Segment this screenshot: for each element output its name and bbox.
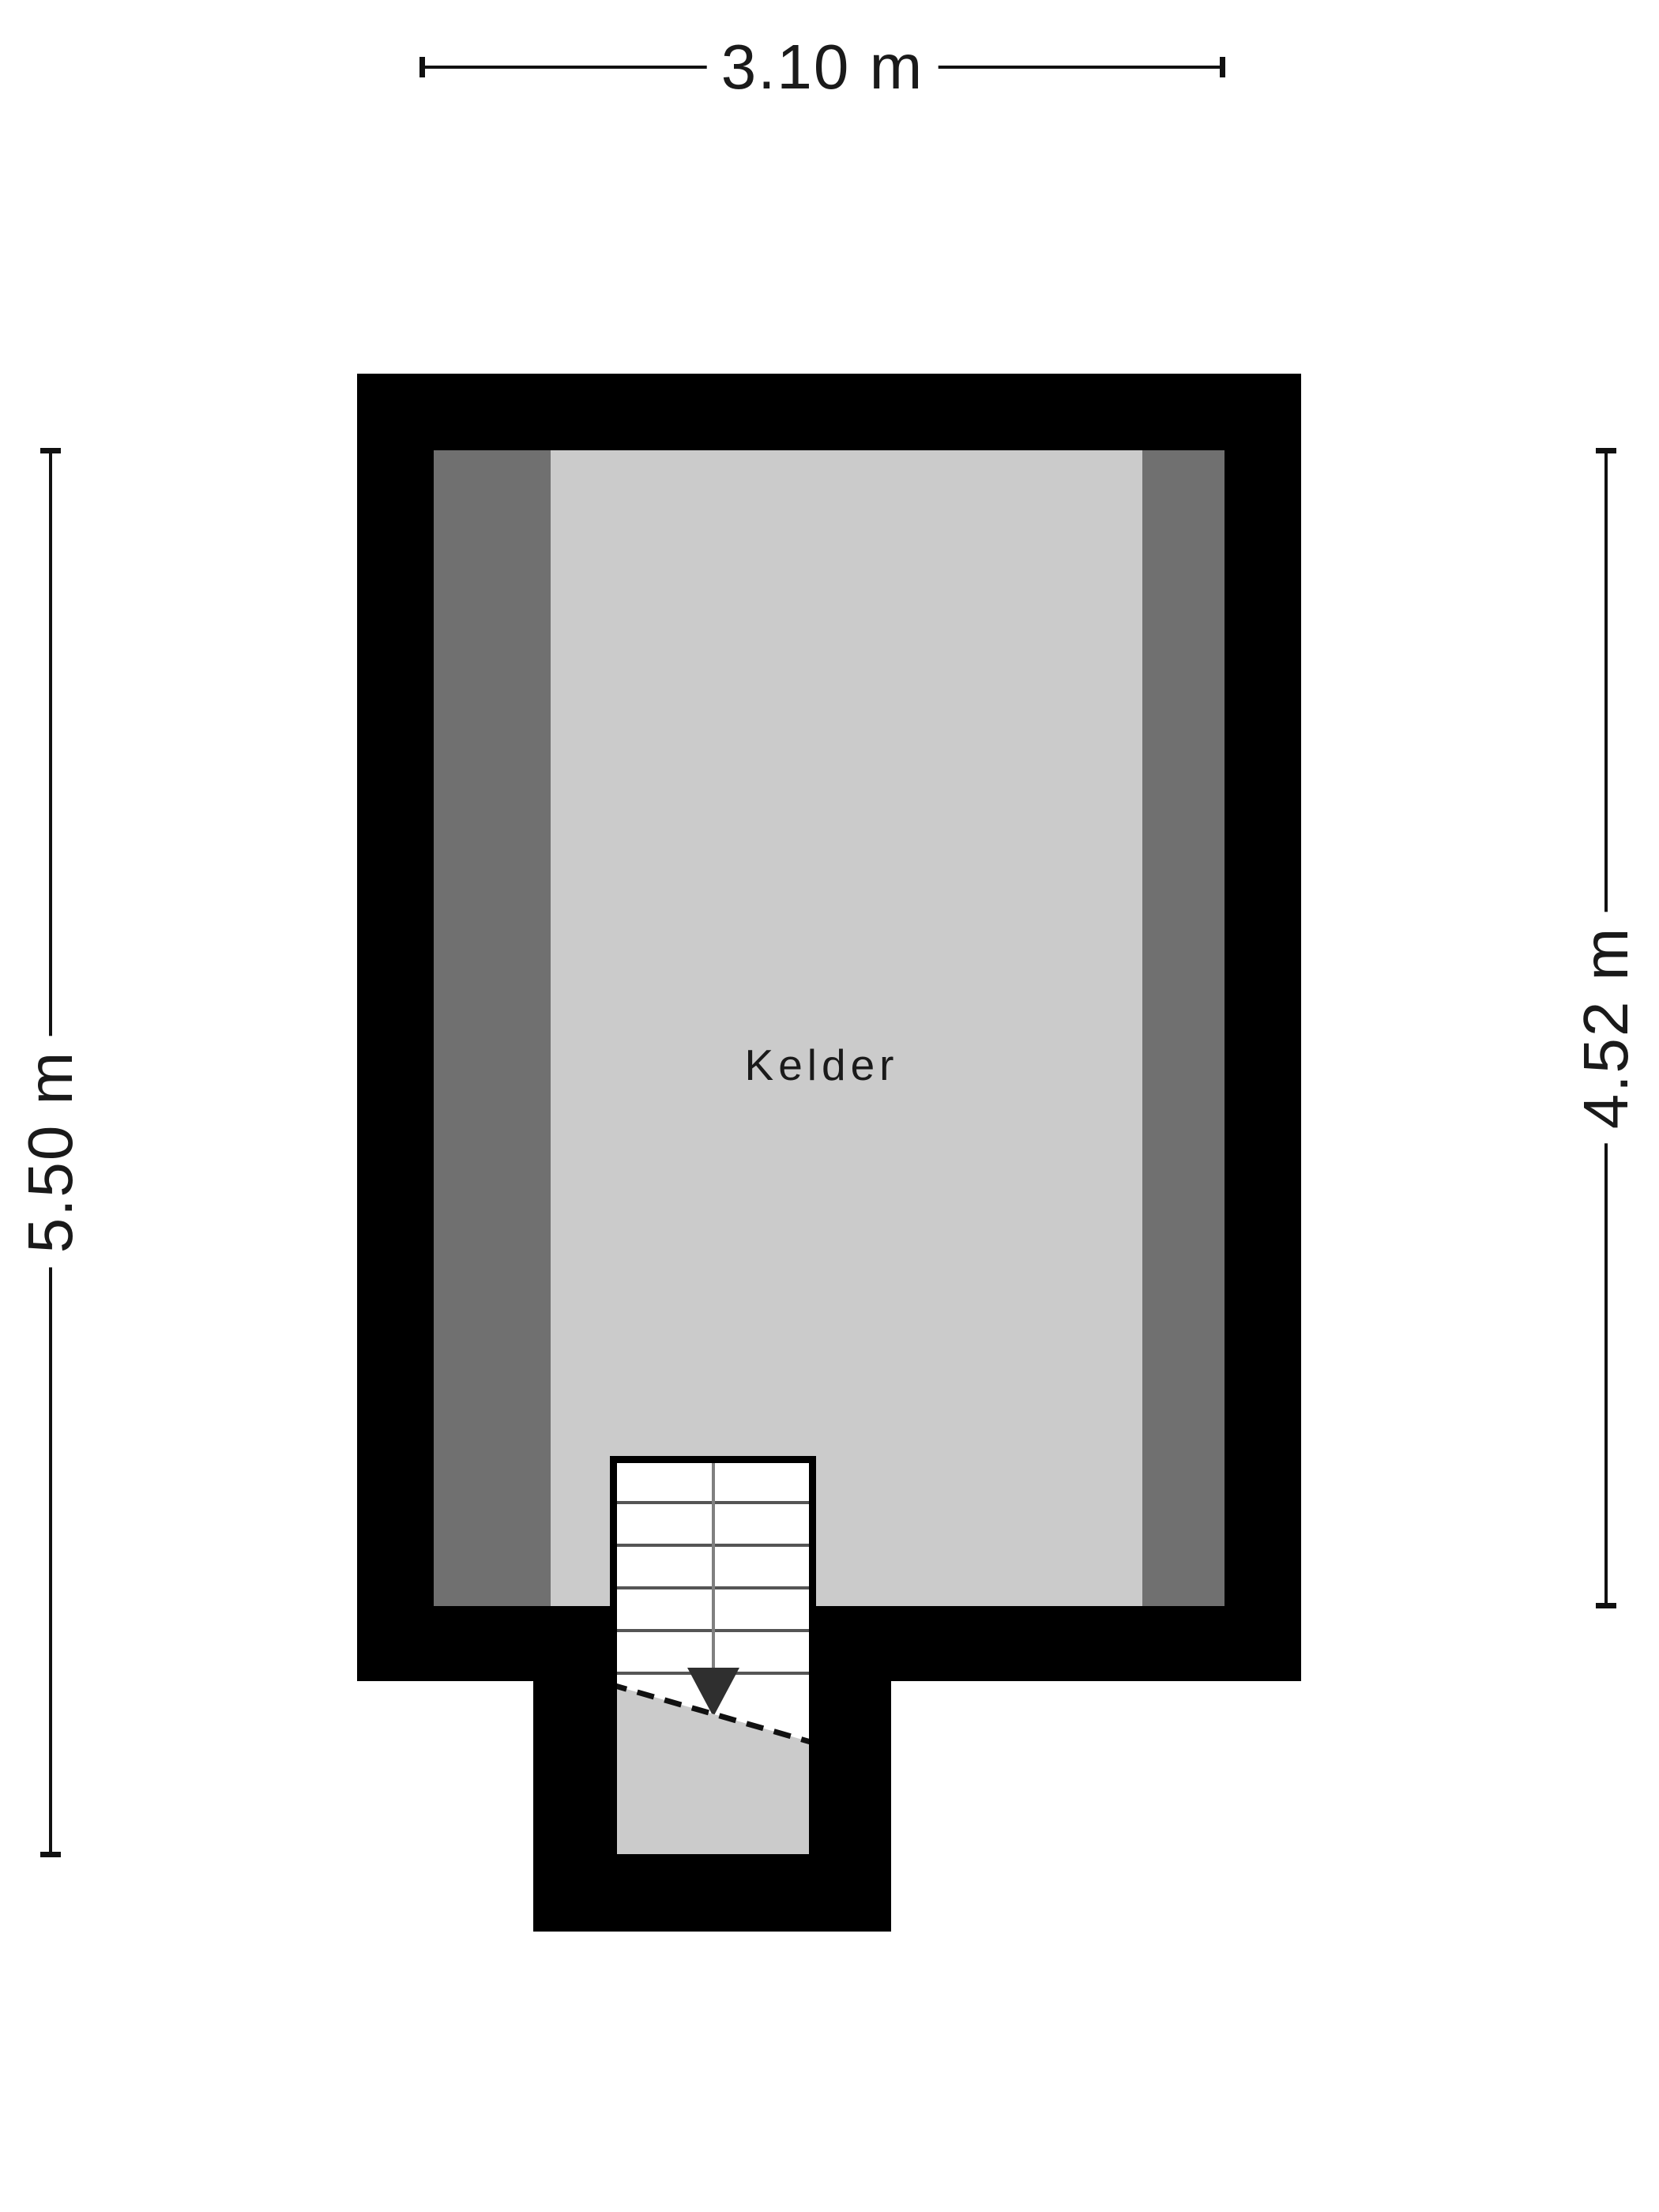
dimension-top-tick-right <box>1220 57 1225 77</box>
wall-shading-right <box>1142 450 1224 1606</box>
dimension-left-label: 5.50 m <box>16 1036 85 1268</box>
wall-shading-left <box>434 450 551 1606</box>
dimension-left-tick-top <box>40 448 61 453</box>
dimension-top-label: 3.10 m <box>707 32 939 102</box>
floor-plan-canvas: 3.10 m 5.50 m 4.52 m Kelder <box>0 0 1659 2212</box>
kelder-floor <box>551 450 1142 1606</box>
stairs-graphic <box>610 1456 816 1854</box>
dimension-top-tick-left <box>419 57 425 77</box>
floor-plan-page: { "room": { "label": "Kelder" }, "dimens… <box>0 0 1659 2212</box>
dimension-left-tick-bottom <box>40 1852 61 1857</box>
dimension-right-label: 4.52 m <box>1571 912 1641 1144</box>
dimension-right-tick-bottom <box>1596 1603 1616 1608</box>
dimension-right-tick-top <box>1596 448 1616 453</box>
room-label: Kelder <box>745 1040 899 1090</box>
staircase <box>610 1456 816 1854</box>
